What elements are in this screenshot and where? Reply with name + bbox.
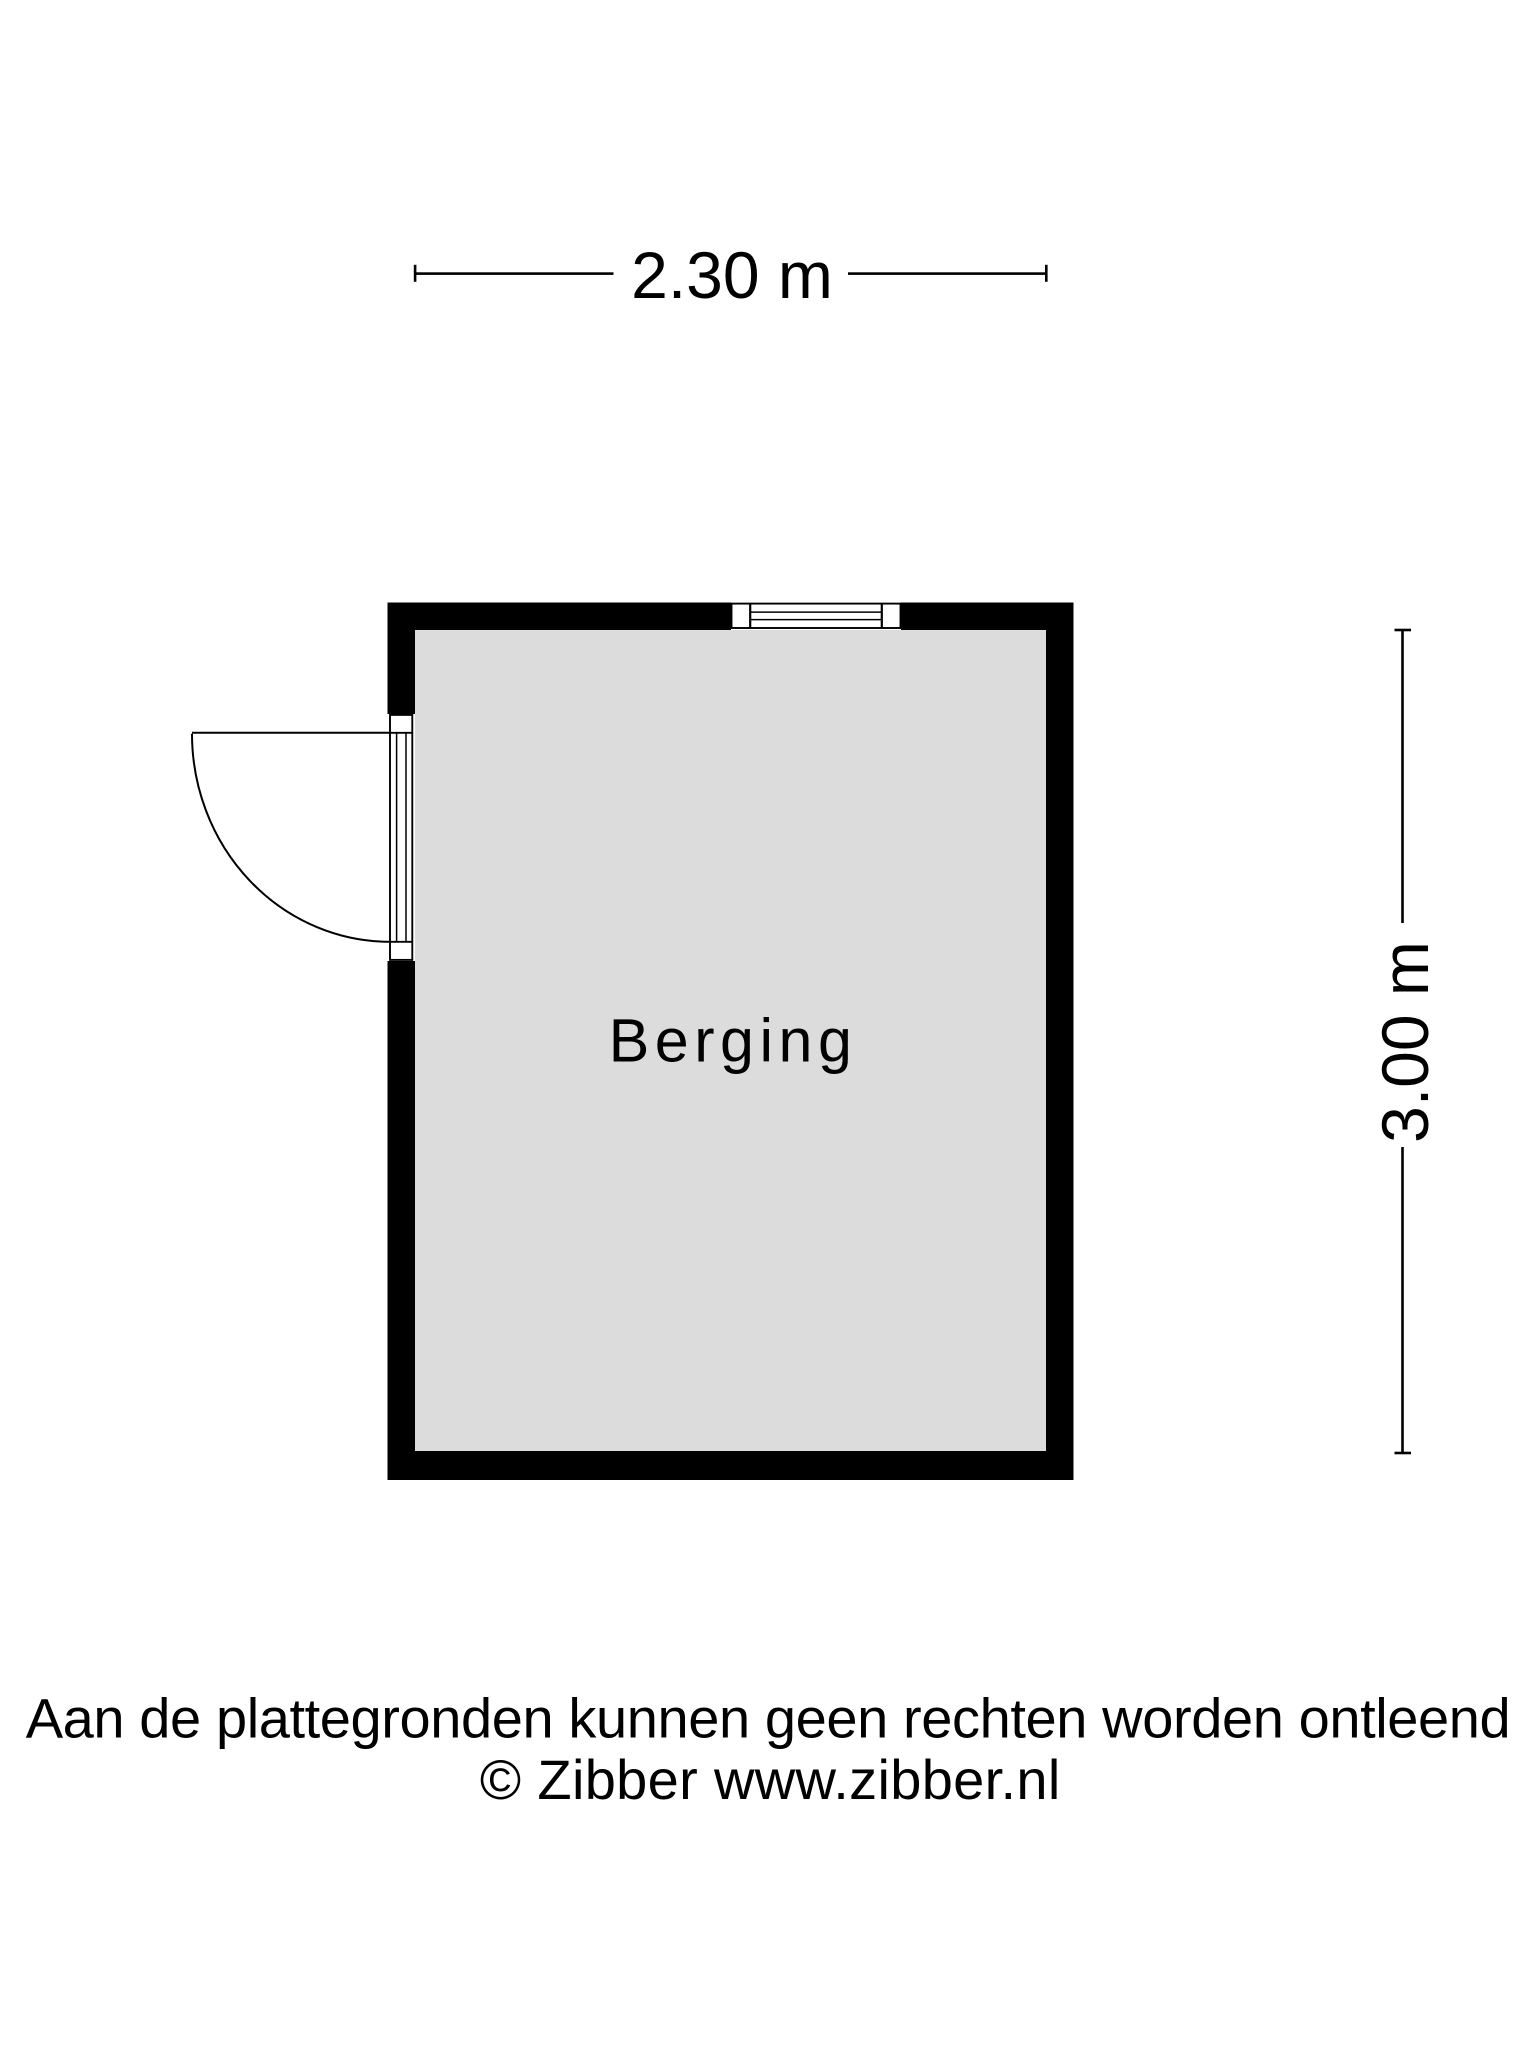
svg-text:Aan de plattegronden kunnen ge: Aan de plattegronden kunnen geen rechten… [26, 1687, 1511, 1750]
svg-text:2.30 m: 2.30 m [631, 238, 833, 312]
svg-text:3.00 m: 3.00 m [1368, 941, 1442, 1143]
svg-text:© Zibber www.zibber.nl: © Zibber www.zibber.nl [480, 1748, 1061, 1811]
svg-text:Berging: Berging [609, 1007, 858, 1075]
